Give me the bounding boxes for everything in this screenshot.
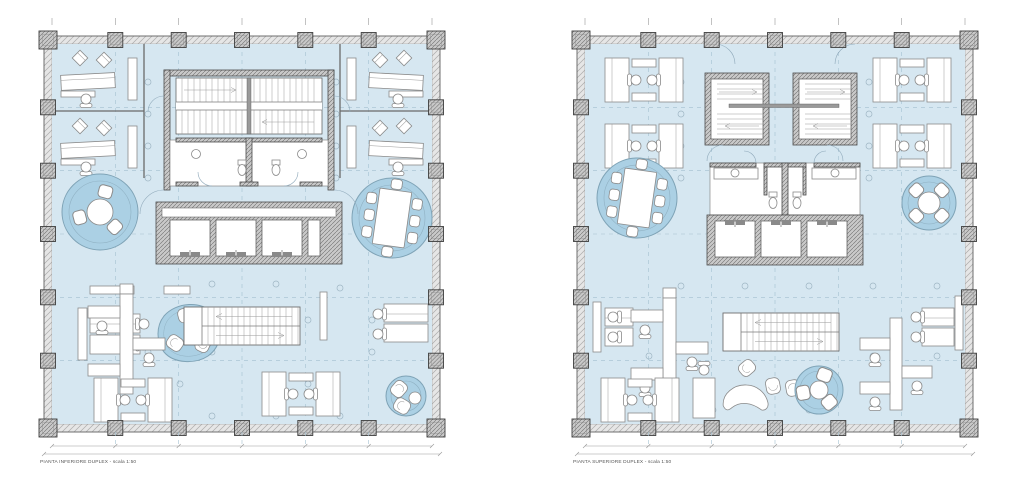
meeting-circle-3-seats	[62, 174, 138, 250]
meeting-circle-4-seats	[902, 176, 956, 230]
duplex-stair-landing	[723, 313, 839, 351]
elevator-cell	[216, 220, 256, 259]
duplex-stair	[184, 307, 300, 345]
elevator-bank	[707, 215, 863, 265]
floor-plan-upper-duplex: PIANTA SUPERIORE DUPLEX - scala 1:50	[572, 18, 978, 465]
elevator-cell	[262, 220, 302, 259]
elevator-cell	[807, 218, 847, 257]
plan-caption-upper: PIANTA SUPERIORE DUPLEX - scala 1:50	[573, 459, 672, 465]
elevator-cell	[170, 220, 210, 259]
elevator-cell	[761, 218, 801, 257]
round-rug-with-table	[795, 366, 843, 414]
elevator-cell	[715, 218, 755, 257]
wc-block	[170, 138, 328, 186]
lounge-circle-small	[386, 376, 426, 416]
floor-plan-canvas: PIANTA INFERIORE DUPLEX - scala 1:50	[0, 0, 1024, 480]
plan-sheet: PIANTA INFERIORE DUPLEX - scala 1:50	[0, 0, 1024, 480]
plan-caption-lower: PIANTA INFERIORE DUPLEX - scala 1:50	[40, 459, 136, 465]
floor-plan-lower-duplex: PIANTA INFERIORE DUPLEX - scala 1:50	[39, 18, 445, 465]
elevator-bank	[156, 202, 342, 264]
